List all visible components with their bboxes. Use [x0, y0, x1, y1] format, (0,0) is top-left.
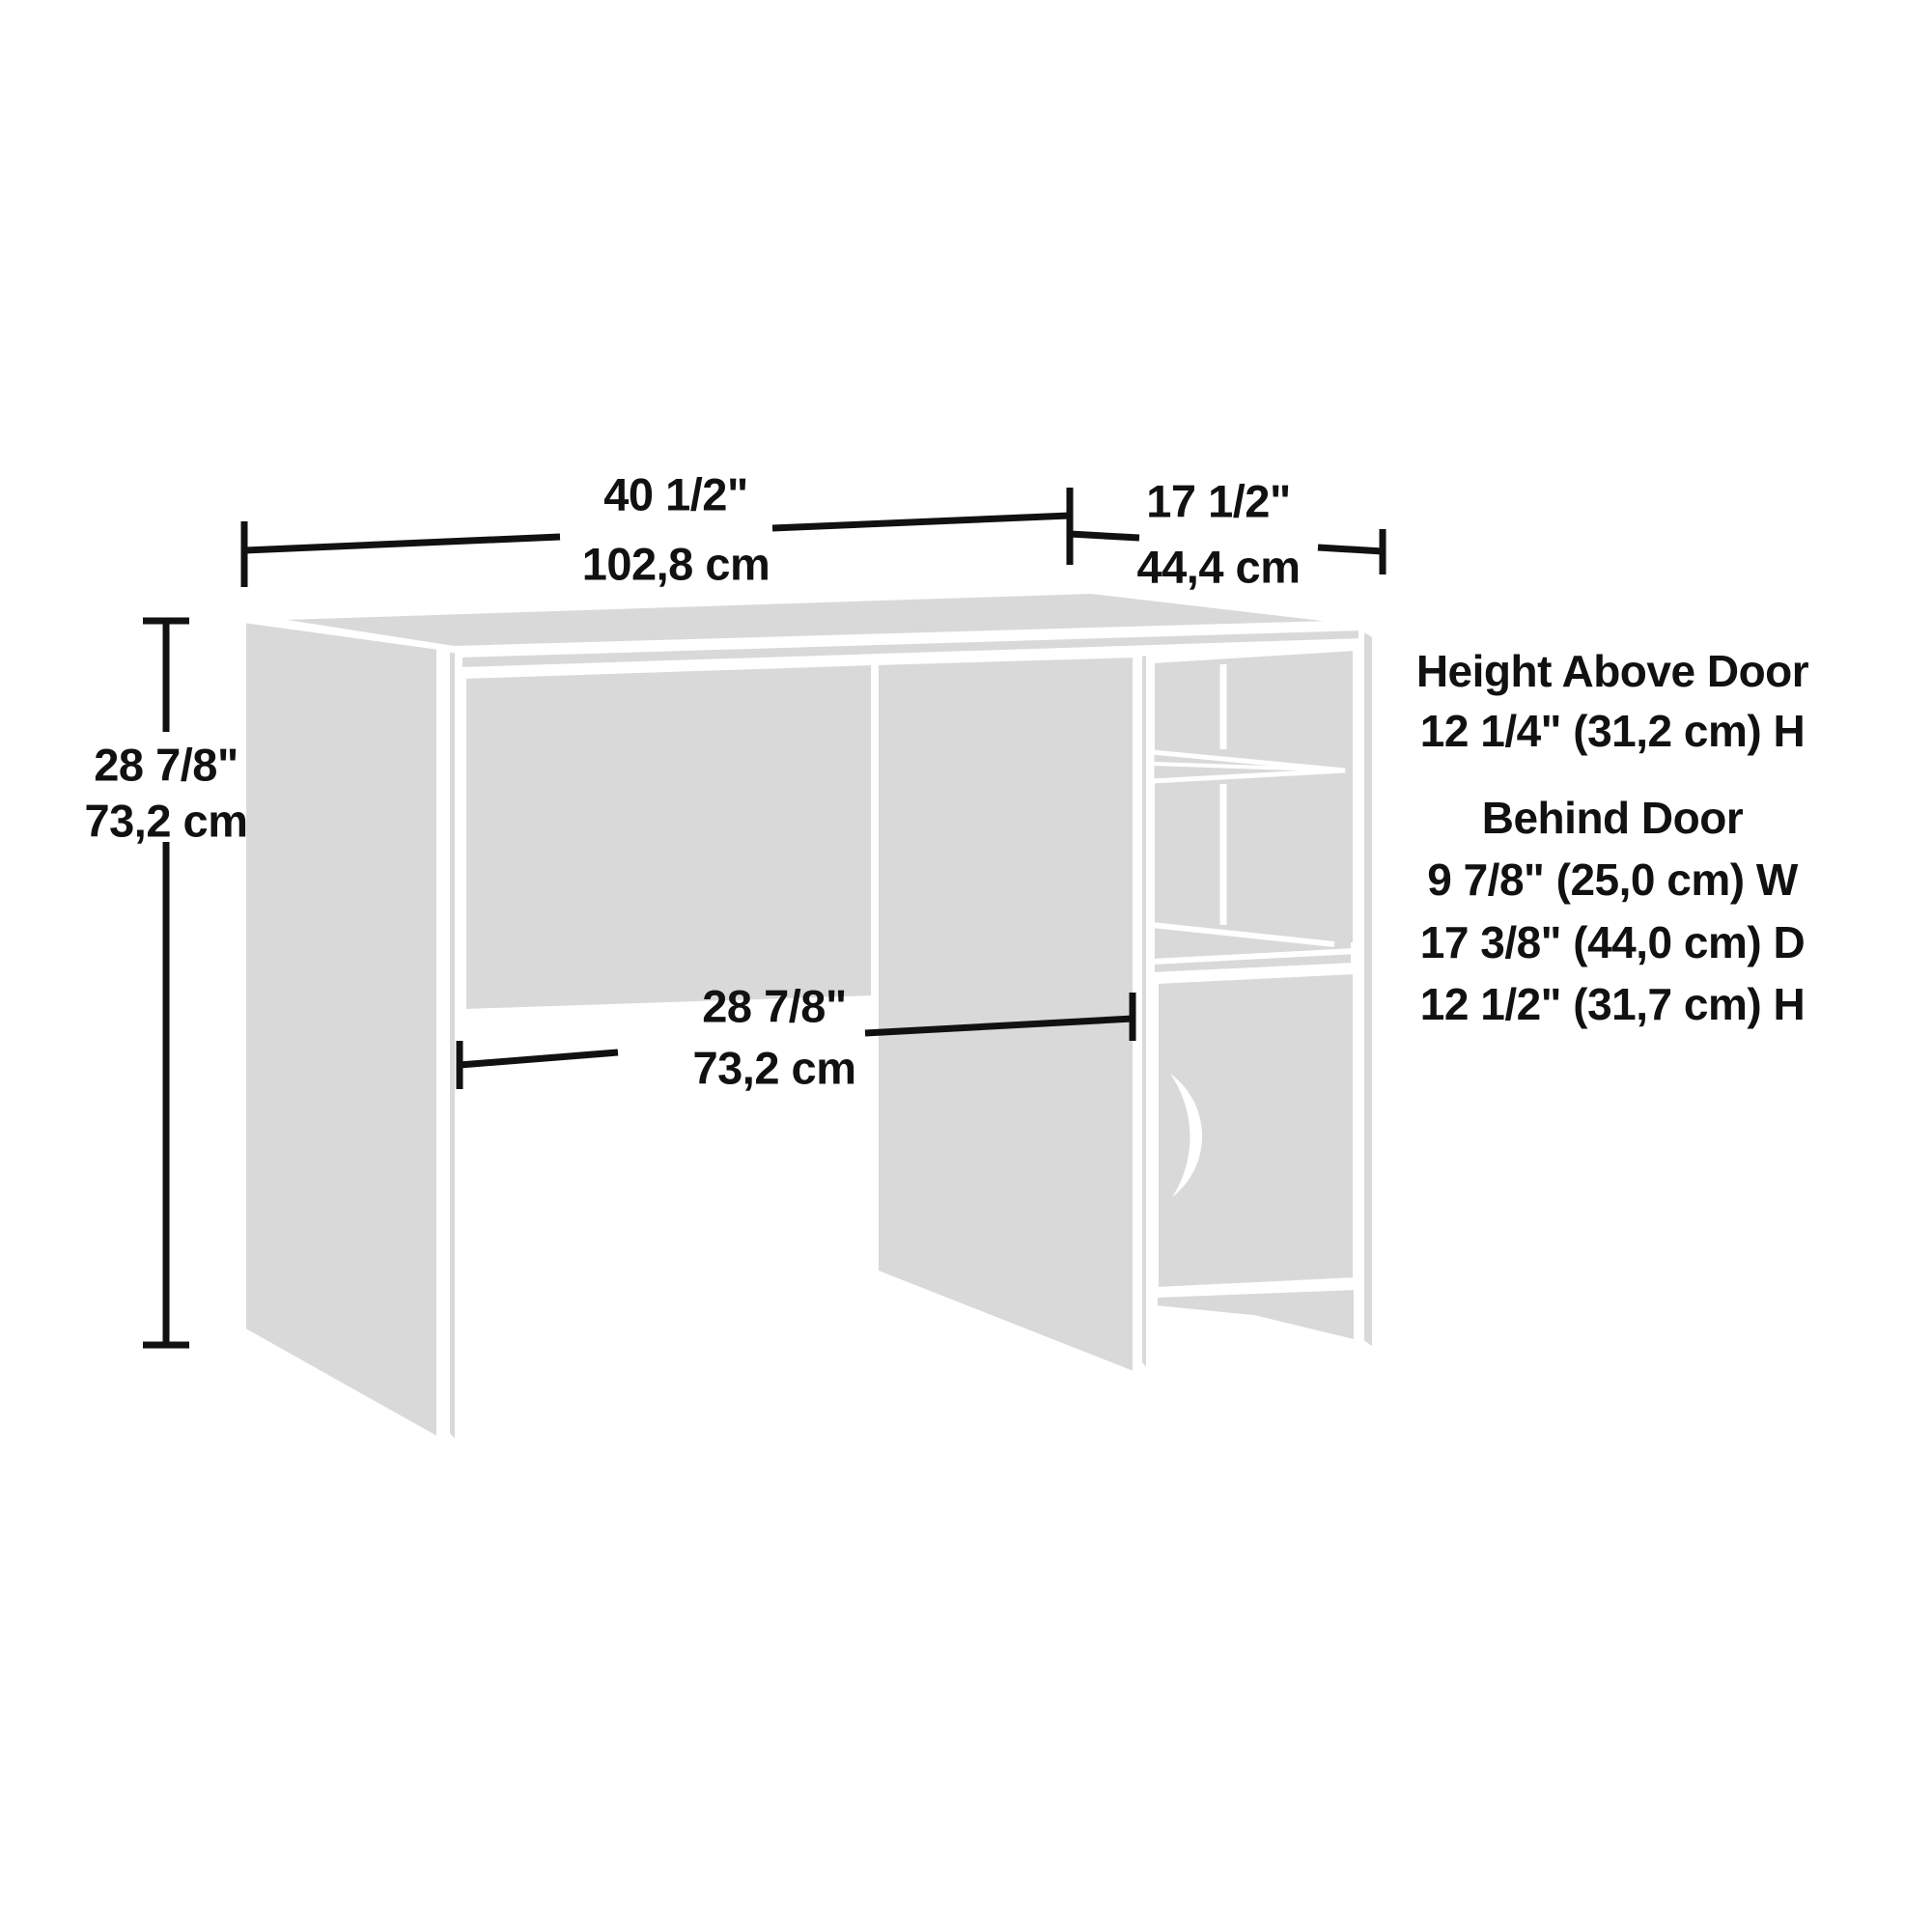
cabinet-door — [1156, 971, 1356, 1290]
width-dim-inches: 40 1/2" — [603, 468, 747, 521]
above-door-title: Height Above Door — [1416, 645, 1808, 697]
center-divider-panel — [876, 655, 1135, 1375]
kneehole-dim-line-left — [460, 1052, 618, 1065]
depth-dim-inches: 17 1/2" — [1146, 475, 1290, 528]
height-dim-inches: 28 7/8" — [94, 739, 238, 792]
behind-door-title: Behind Door — [1482, 792, 1743, 844]
above-door-dims: 12 1/4" (31,2 cm) H — [1420, 705, 1805, 757]
behind-door-depth: 17 3/8" (44,0 cm) D — [1420, 916, 1805, 968]
left-side-panel-inner-edge — [447, 649, 458, 1445]
modesty-panel — [463, 662, 874, 1012]
kneehole-dim-cm: 73,2 cm — [693, 1042, 856, 1095]
center-divider-front-edge — [1139, 653, 1149, 1375]
behind-door-width: 9 7/8" (25,0 cm) W — [1427, 854, 1798, 906]
depth-dim-cm: 44,4 cm — [1137, 541, 1301, 594]
width-dim-cm: 102,8 cm — [582, 538, 770, 591]
width-dim-line-right — [772, 516, 1070, 528]
depth-dim-line-left — [1070, 534, 1139, 538]
width-dim-line-left — [244, 537, 560, 550]
depth-dim-line-right — [1318, 547, 1383, 551]
left-side-panel — [243, 620, 439, 1441]
behind-door-height: 12 1/2" (31,7 cm) H — [1420, 978, 1805, 1030]
height-dim-cm: 73,2 cm — [85, 795, 248, 848]
desk-dimension-diagram: 40 1/2" 102,8 cm 17 1/2" 44,4 cm 28 7/8"… — [0, 0, 1932, 1932]
kneehole-dim-inches: 28 7/8" — [702, 980, 846, 1033]
right-side-panel — [1361, 628, 1375, 1352]
